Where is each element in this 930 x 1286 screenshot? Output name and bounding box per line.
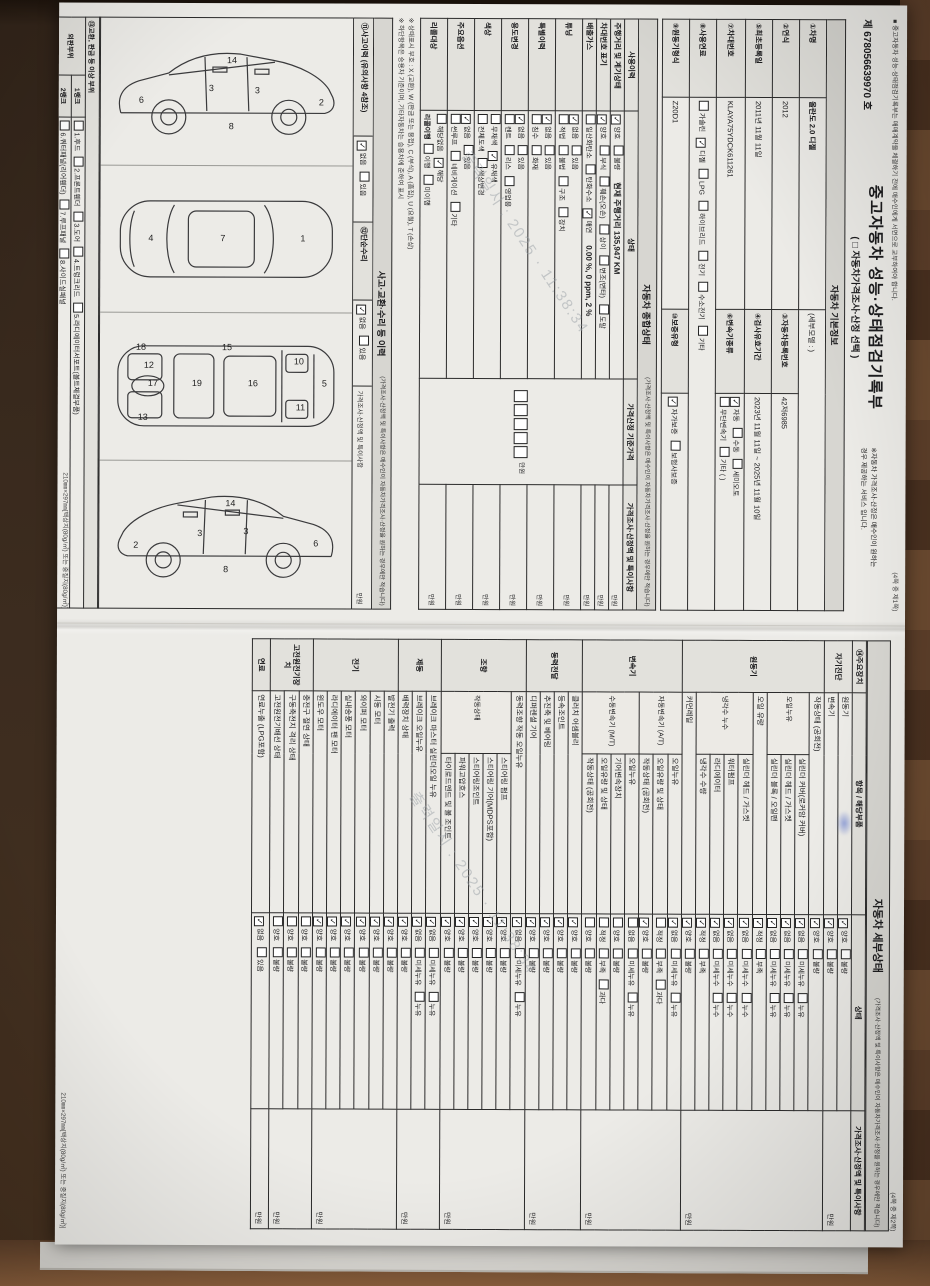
title-subtitle: ( □ 자동차가격조사·산정 선택 ) xyxy=(849,147,864,447)
checkbox[interactable] xyxy=(720,397,730,407)
checkbox[interactable] xyxy=(756,949,766,959)
checkbox[interactable] xyxy=(316,947,326,957)
checkbox[interactable] xyxy=(585,948,595,958)
checkbox[interactable]: ✓ xyxy=(554,917,564,927)
checkbox[interactable] xyxy=(656,918,666,928)
checkbox[interactable] xyxy=(60,248,70,258)
option: 훼손(오손) xyxy=(596,176,609,218)
option: 기타 xyxy=(447,201,460,226)
checkbox[interactable]: ✓ xyxy=(753,918,763,928)
checkbox[interactable] xyxy=(257,947,267,957)
checkbox[interactable] xyxy=(415,991,425,1001)
plate-number: 42저6985 xyxy=(771,394,799,611)
option: 있음 xyxy=(542,145,555,170)
option: ✓양호 xyxy=(455,917,466,942)
checkbox[interactable] xyxy=(656,949,666,959)
option: ✓없음 xyxy=(461,114,473,139)
option: ✓적정 xyxy=(753,918,764,943)
checkbox[interactable] xyxy=(685,949,695,959)
checkbox[interactable] xyxy=(429,948,439,958)
price-box[interactable] xyxy=(514,404,528,416)
page1-summary: ■ 중고자동차 성능·상태점검기록부는 매매계약을 체결하기 전에 매수인에게 … xyxy=(57,3,907,626)
checkbox[interactable] xyxy=(599,917,609,927)
option: ✓없음 xyxy=(710,918,721,943)
option: 과다 xyxy=(654,979,666,1004)
detail-row: 제동브레이크 마스터 실린더오일 누유✓없음미세누유누유만원 xyxy=(425,639,441,1229)
checkbox[interactable]: ✓ xyxy=(597,114,607,124)
checkbox[interactable] xyxy=(486,948,496,958)
checkbox[interactable]: ✓ xyxy=(426,917,436,927)
checkbox[interactable] xyxy=(505,176,515,186)
checkbox[interactable] xyxy=(55,234,56,244)
checkbox[interactable] xyxy=(784,949,794,959)
checkbox[interactable] xyxy=(614,145,624,155)
option: 미이행 xyxy=(420,174,433,205)
checkbox[interactable] xyxy=(437,114,447,124)
checkbox[interactable]: ✓ xyxy=(355,917,365,927)
item-label: 클러치 어셈블리 xyxy=(568,692,583,914)
status-options: ✓양호불량 xyxy=(539,914,554,1110)
checkbox[interactable] xyxy=(429,991,439,1001)
item-label: 원동기 xyxy=(837,693,852,915)
photo-of-inspection-document: ■ 중고자동차 성능·상태점검기록부는 매매계약을 체결하기 전에 매수인에게 … xyxy=(0,0,930,1286)
checkbox[interactable]: ✓ xyxy=(488,151,498,161)
engine-type: Z20D1 xyxy=(662,97,690,309)
checkbox[interactable]: ✓ xyxy=(327,916,337,926)
option: ✓양호 xyxy=(398,917,409,942)
checkbox[interactable] xyxy=(559,114,569,124)
checkbox[interactable]: ✓ xyxy=(434,158,444,168)
checkbox[interactable] xyxy=(401,948,411,958)
price-unit: 만원 xyxy=(473,484,500,609)
checkbox[interactable] xyxy=(656,979,666,989)
option: 부족 xyxy=(597,948,609,973)
checkbox[interactable] xyxy=(699,101,709,111)
price-unit: 만원 xyxy=(609,485,623,610)
warranty-options: ✓자가보증보험사보증 xyxy=(661,393,689,610)
status-options: ✓양호불량 xyxy=(454,913,469,1109)
option: 장치 xyxy=(555,207,568,232)
status-options: ✓양호불량 xyxy=(681,914,696,1110)
title-note-2: 경우 제공하는 서비스 입니다. xyxy=(857,447,867,607)
checkbox[interactable]: ✓ xyxy=(582,208,592,218)
checkbox[interactable]: ✓ xyxy=(515,114,525,124)
price-box[interactable] xyxy=(514,432,528,444)
checkbox[interactable] xyxy=(699,282,709,292)
option: 기타 xyxy=(696,326,708,351)
base-price-cell: 만원 xyxy=(419,378,623,485)
option: 부족 xyxy=(754,949,766,974)
checkbox[interactable] xyxy=(741,993,751,1003)
checkbox[interactable]: ✓ xyxy=(710,918,720,928)
checkbox[interactable] xyxy=(558,207,568,217)
checkbox[interactable]: ✓ xyxy=(668,918,678,928)
checkbox[interactable] xyxy=(387,948,397,958)
option: 기타 ( ) xyxy=(717,447,730,480)
option: ✓없음 xyxy=(515,114,527,139)
checkbox[interactable] xyxy=(344,947,354,957)
option: 미세누수 xyxy=(711,949,723,987)
checkbox[interactable] xyxy=(415,948,425,958)
device-section-label: 조향 xyxy=(441,639,526,691)
option: 전기 xyxy=(697,251,709,276)
checkbox[interactable] xyxy=(600,145,610,155)
option: 불량 xyxy=(611,948,623,973)
option: LPG xyxy=(698,169,709,195)
checkbox[interactable]: ✓ xyxy=(739,918,749,928)
checkbox[interactable] xyxy=(699,251,709,261)
checkbox[interactable] xyxy=(424,144,434,154)
section-detail-state: 자동차 세부상태 (가격조사·산정액 및 특이사항은 매수인이 자동차가격조사·… xyxy=(865,640,891,1231)
checkbox[interactable] xyxy=(613,917,623,927)
status-options: ✓양호불량현재 주행거리 135,947 KM xyxy=(609,111,624,379)
checkbox[interactable]: ✓ xyxy=(639,918,649,928)
option: ✓매연 xyxy=(582,208,594,233)
panel-item: 10.크로스멤버 xyxy=(55,176,56,230)
table-row: ②연식 2012 ③자동차등록번호 42저6985 xyxy=(771,20,800,611)
checkbox[interactable]: ✓ xyxy=(696,138,706,148)
section-basic-info: 자동차 기본정보 xyxy=(825,19,846,611)
option: 수동 xyxy=(730,428,743,453)
option: 불량 xyxy=(640,948,652,973)
checkbox[interactable] xyxy=(443,948,453,958)
paper-spec-footer: 210㎜×297㎜[백상지(80g/㎡) 또는 중질지(80g/㎡)] xyxy=(61,472,70,608)
checkbox[interactable] xyxy=(586,114,596,124)
checkbox[interactable]: ✓ xyxy=(569,114,579,124)
usage-item-label: 주행거리 및 계기상태 xyxy=(610,19,624,111)
checkbox[interactable]: ✓ xyxy=(469,917,479,927)
paper-fold-shadow xyxy=(57,619,905,638)
checkbox[interactable]: ✓ xyxy=(824,918,834,928)
option: 있음 xyxy=(569,145,582,170)
diagram-zone-number: 3 xyxy=(255,85,260,95)
checkbox[interactable] xyxy=(74,156,84,166)
option: 양호 xyxy=(285,916,297,941)
checkbox[interactable] xyxy=(301,947,311,957)
diagram-zone-number: 6 xyxy=(139,95,144,105)
checkbox[interactable] xyxy=(572,145,582,155)
status-options: 적정부족과다 xyxy=(652,914,667,1110)
option: 불량 xyxy=(328,947,340,972)
checkbox[interactable] xyxy=(532,145,542,155)
item-group-label: 수동변속기 (M/T) xyxy=(582,692,639,754)
item-label: 오일누유 xyxy=(624,754,639,914)
item-label: 동력조향 작동 오일누유 xyxy=(511,692,526,914)
status-options: ✓양호불량 xyxy=(808,915,823,1111)
checkbox[interactable] xyxy=(74,121,84,131)
checkbox[interactable]: ✓ xyxy=(461,114,471,124)
status-options: ✓없음미세누수누수 xyxy=(737,914,752,1110)
checkbox[interactable] xyxy=(784,993,794,1003)
checkbox[interactable]: ✓ xyxy=(696,918,706,928)
checkbox[interactable] xyxy=(600,176,610,186)
checkbox[interactable] xyxy=(273,916,283,926)
option: 불량 xyxy=(583,948,595,973)
diagram-zone-number: 7 xyxy=(220,233,225,243)
checkbox[interactable] xyxy=(287,947,297,957)
device-section-label: 제동 xyxy=(398,639,441,691)
checkbox[interactable]: ✓ xyxy=(838,918,848,928)
checkbox[interactable] xyxy=(55,176,56,186)
option: 미세누수 xyxy=(739,949,751,987)
item-label: 라디에이터 xyxy=(710,754,725,914)
checkbox[interactable] xyxy=(628,918,638,928)
option: 무채색 xyxy=(488,114,501,145)
checkbox[interactable] xyxy=(671,440,681,450)
accident-summary-row: ⑪사고이력 (유의사항 4참조) ✓없음있음 ⑫단순수리 ✓없음있음 가격조사·… xyxy=(351,18,374,610)
checkbox[interactable] xyxy=(559,145,569,155)
checkbox[interactable] xyxy=(571,948,581,958)
checkbox[interactable] xyxy=(586,165,596,175)
checkbox[interactable] xyxy=(74,211,84,221)
checkbox[interactable] xyxy=(841,949,851,959)
rank-label: 1랭크 xyxy=(71,75,85,117)
checkbox[interactable]: ✓ xyxy=(384,917,394,927)
checkbox[interactable] xyxy=(733,459,743,469)
checkbox[interactable] xyxy=(60,200,70,210)
checkbox[interactable] xyxy=(505,145,515,155)
checkbox[interactable] xyxy=(301,916,311,926)
checkbox[interactable] xyxy=(812,949,822,959)
option: 양호 xyxy=(299,916,311,941)
item-label: 워터펌프 xyxy=(724,754,739,914)
checkbox[interactable] xyxy=(373,948,383,958)
diagram-zone-number: 12 xyxy=(144,360,154,370)
checkbox[interactable] xyxy=(699,326,709,336)
checkbox[interactable] xyxy=(599,948,609,958)
checkbox[interactable] xyxy=(478,114,488,124)
detail-row: 동력전달클러치 어셈블리✓양호불량만원 xyxy=(567,640,583,1230)
simple-repair-label: ⑫단순수리 xyxy=(353,223,372,301)
option: 미세누유 xyxy=(625,948,637,986)
checkbox[interactable]: ✓ xyxy=(611,114,621,124)
checkbox[interactable]: ✓ xyxy=(356,305,366,315)
checkbox[interactable] xyxy=(627,992,637,1002)
option: ✓양호 xyxy=(554,917,565,942)
checkbox[interactable] xyxy=(599,225,609,235)
checkbox[interactable] xyxy=(585,917,595,927)
checkbox[interactable] xyxy=(330,947,340,957)
checkbox[interactable] xyxy=(798,993,808,1003)
checkbox[interactable]: ✓ xyxy=(540,917,550,927)
checkbox[interactable] xyxy=(491,114,501,124)
item-label: 연료누출 (LPG포함) xyxy=(252,691,271,913)
vin: KLAYA75YDCK611261 xyxy=(716,97,746,309)
col-base-price: 가격산정 기준가격 xyxy=(623,379,637,485)
checkbox[interactable] xyxy=(451,114,461,124)
checkbox[interactable] xyxy=(359,335,369,345)
page2-detail-state: (4쪽 중 제2쪽) 출력일시 : 2025 · 11:38:34 자동차 세부… xyxy=(55,623,905,1246)
checkbox[interactable] xyxy=(543,948,553,958)
checkbox[interactable] xyxy=(827,949,837,959)
checkbox[interactable] xyxy=(518,145,528,155)
ink-smudge xyxy=(836,810,852,836)
status-options: ✓없음있음 xyxy=(251,913,270,1109)
checkbox[interactable] xyxy=(74,247,84,257)
checkbox[interactable]: ✓ xyxy=(795,918,805,928)
option: ✓해당 xyxy=(434,158,446,183)
checkbox[interactable]: ✓ xyxy=(767,918,777,928)
checkbox[interactable] xyxy=(613,948,623,958)
checkbox[interactable] xyxy=(557,948,567,958)
detail-row: 전기발전기 출력✓양호불량만원 xyxy=(382,639,398,1229)
checkbox[interactable]: ✓ xyxy=(781,918,791,928)
status-options: ✓양호불량 xyxy=(368,913,383,1109)
checkbox[interactable]: ✓ xyxy=(370,917,380,927)
option: 누유 xyxy=(512,992,524,1017)
item-label: 변속기 xyxy=(823,693,838,915)
status-options: ✓없음미세누유누유 xyxy=(411,913,426,1109)
page1-marker: (4쪽 중 제1쪽) xyxy=(891,572,901,611)
item-label: 구동축전지 격리 상태 xyxy=(284,691,299,913)
option: 누유 xyxy=(796,993,808,1018)
checkbox[interactable]: ✓ xyxy=(254,916,264,926)
price-unit: 만원 xyxy=(581,485,595,610)
checkbox[interactable]: ✓ xyxy=(313,916,323,926)
car-diagram-band: 6332814 471 xyxy=(98,17,353,610)
checkbox[interactable] xyxy=(670,949,680,959)
checkbox[interactable] xyxy=(699,949,709,959)
option: 누유 xyxy=(668,992,680,1017)
checkbox[interactable] xyxy=(699,201,709,211)
rank-items: 1.후드2.프론트휀더3.도어4.트렁크리드5.라디에이터서포트(볼트체결부품) xyxy=(70,117,86,608)
price-box[interactable] xyxy=(514,446,528,458)
option: 불량 xyxy=(569,948,581,973)
checkbox[interactable]: ✓ xyxy=(341,917,351,927)
option: ✓양호 xyxy=(441,917,452,942)
checkbox[interactable] xyxy=(424,174,434,184)
item-label: 충전구 절연 상태 xyxy=(298,691,313,913)
checkbox[interactable]: ✓ xyxy=(441,917,451,927)
checkbox[interactable] xyxy=(733,428,743,438)
checkbox[interactable]: ✓ xyxy=(682,918,692,928)
checkbox[interactable] xyxy=(450,201,460,211)
price-note: (가격조사·산정액 및 특이사항은 매수인이 자동차가격조사·산정을 원하는 경… xyxy=(873,998,883,1227)
checkbox[interactable] xyxy=(670,992,680,1002)
checkbox[interactable] xyxy=(798,949,808,959)
checkbox[interactable] xyxy=(458,948,468,958)
status-options: ✓양호불량 xyxy=(312,913,327,1109)
rank-label: A랭크 xyxy=(55,75,58,117)
overall-state-table: 사용이력 상태 가격산정 기준가격 가격조사·산정액 및 특이사항 주행거리 및… xyxy=(418,18,639,611)
checkbox[interactable] xyxy=(532,114,542,124)
checkbox[interactable] xyxy=(627,948,637,958)
item-label: 기어변속장치 xyxy=(610,754,625,914)
checkbox[interactable] xyxy=(720,447,730,457)
status-options: 적정부족과다 xyxy=(595,914,610,1110)
checkbox[interactable] xyxy=(741,949,751,959)
checkbox[interactable] xyxy=(514,992,524,1002)
checkbox[interactable] xyxy=(74,302,84,312)
checkbox[interactable] xyxy=(287,916,297,926)
checkbox[interactable]: ✓ xyxy=(668,397,678,407)
checkbox[interactable] xyxy=(727,993,737,1003)
checkbox[interactable] xyxy=(472,948,482,958)
diagram-zone-number: 5 xyxy=(322,379,327,389)
option: 있음 xyxy=(357,171,369,196)
checkbox[interactable]: ✓ xyxy=(809,918,819,928)
checkbox[interactable] xyxy=(273,947,283,957)
checkbox[interactable]: ✓ xyxy=(568,917,578,927)
checkbox[interactable]: ✓ xyxy=(398,917,408,927)
item-label: 디퍼렌셜 기어 xyxy=(525,692,540,914)
exchange-label: ⑬교환, 판금 등 이상 부위 xyxy=(84,17,100,608)
checkbox[interactable]: ✓ xyxy=(730,397,740,407)
option: 불량 xyxy=(342,947,354,972)
option: 렌트 xyxy=(502,114,515,139)
option: 양호 xyxy=(583,917,595,942)
checkbox[interactable] xyxy=(55,120,56,130)
checkbox[interactable]: ✓ xyxy=(542,114,552,124)
option: ✓없음 xyxy=(426,917,437,942)
usage-item-label: 튜닝 xyxy=(555,19,582,111)
option: 불량 xyxy=(555,948,567,973)
usage-item-label: 배출가스 xyxy=(582,19,596,111)
accident-price-cell: 가격조사·산정액 및 특이사항 만원 xyxy=(352,387,372,609)
rank-row: 외판부위1랭크1.후드2.프론트휀더3.도어4.트렁크리드5.라디에이터서포트(… xyxy=(70,17,86,608)
checkbox[interactable] xyxy=(770,993,780,1003)
checkbox[interactable] xyxy=(713,992,723,1002)
col-assessed-price: 가격조사·산정액 및 특이사항 xyxy=(623,485,637,610)
price-box[interactable] xyxy=(514,418,528,430)
checkbox[interactable]: ✓ xyxy=(455,917,465,927)
price-unit: 만원 xyxy=(595,485,609,610)
checkbox[interactable]: ✓ xyxy=(412,917,422,927)
status-options: ✓없음미세누수누수 xyxy=(709,914,724,1110)
legend-note-2: ※ 하단항목은 승용차 기준이며, 기타자동차는 승용차에 준하여 표시 xyxy=(395,18,407,610)
checkbox[interactable] xyxy=(599,979,609,989)
option: 누유 xyxy=(782,993,794,1018)
item-group-label: 오일누유 xyxy=(767,692,810,754)
checkbox[interactable] xyxy=(60,121,70,131)
price-box[interactable] xyxy=(514,390,528,402)
option: ✓양호 xyxy=(355,917,366,942)
overall-row: 용도변경✓없음있음렌트리스영업용만원 xyxy=(500,19,529,610)
option: 보험사보증 xyxy=(669,440,681,484)
checkbox[interactable] xyxy=(505,114,515,124)
option: ✓양호 xyxy=(341,917,352,942)
checkbox[interactable]: ✓ xyxy=(357,141,367,151)
diagram-zone-number: 3 xyxy=(243,526,248,536)
checkbox[interactable] xyxy=(599,304,609,314)
checkbox[interactable]: ✓ xyxy=(724,918,734,928)
checkbox[interactable] xyxy=(713,949,723,959)
checkbox[interactable] xyxy=(358,947,368,957)
car-diagram-side-right: 6332814 xyxy=(101,18,354,166)
checkbox[interactable] xyxy=(642,948,652,958)
option: 적법 xyxy=(556,114,569,139)
checkbox[interactable] xyxy=(727,949,737,959)
diagram-zone-number: 14 xyxy=(227,55,237,65)
checkbox[interactable] xyxy=(699,169,709,179)
price-unit: 만원 xyxy=(500,485,527,610)
status-options: ✓없음미세누유누유 xyxy=(766,914,781,1110)
checkbox[interactable]: ✓ xyxy=(526,917,536,927)
checkbox[interactable] xyxy=(599,256,609,266)
table-row: ⑦차대번호 KLAYA75YDCK611261 ⑥변속기종류 ✓자동수동세미오토… xyxy=(715,19,746,610)
panel-item: 2.프론트휀더 xyxy=(72,156,84,206)
option: ✓양호 xyxy=(639,918,650,943)
car-diagram-underbody: 1812171913161510115 xyxy=(100,313,353,461)
checkbox[interactable] xyxy=(360,171,370,181)
option: 수소전기 xyxy=(697,282,709,320)
checkbox[interactable] xyxy=(559,176,569,186)
option: ✓없음 xyxy=(254,916,265,941)
checkbox[interactable] xyxy=(545,145,555,155)
option: 불량 xyxy=(314,947,326,972)
option: 누수 xyxy=(711,992,723,1017)
checkbox[interactable] xyxy=(770,949,780,959)
